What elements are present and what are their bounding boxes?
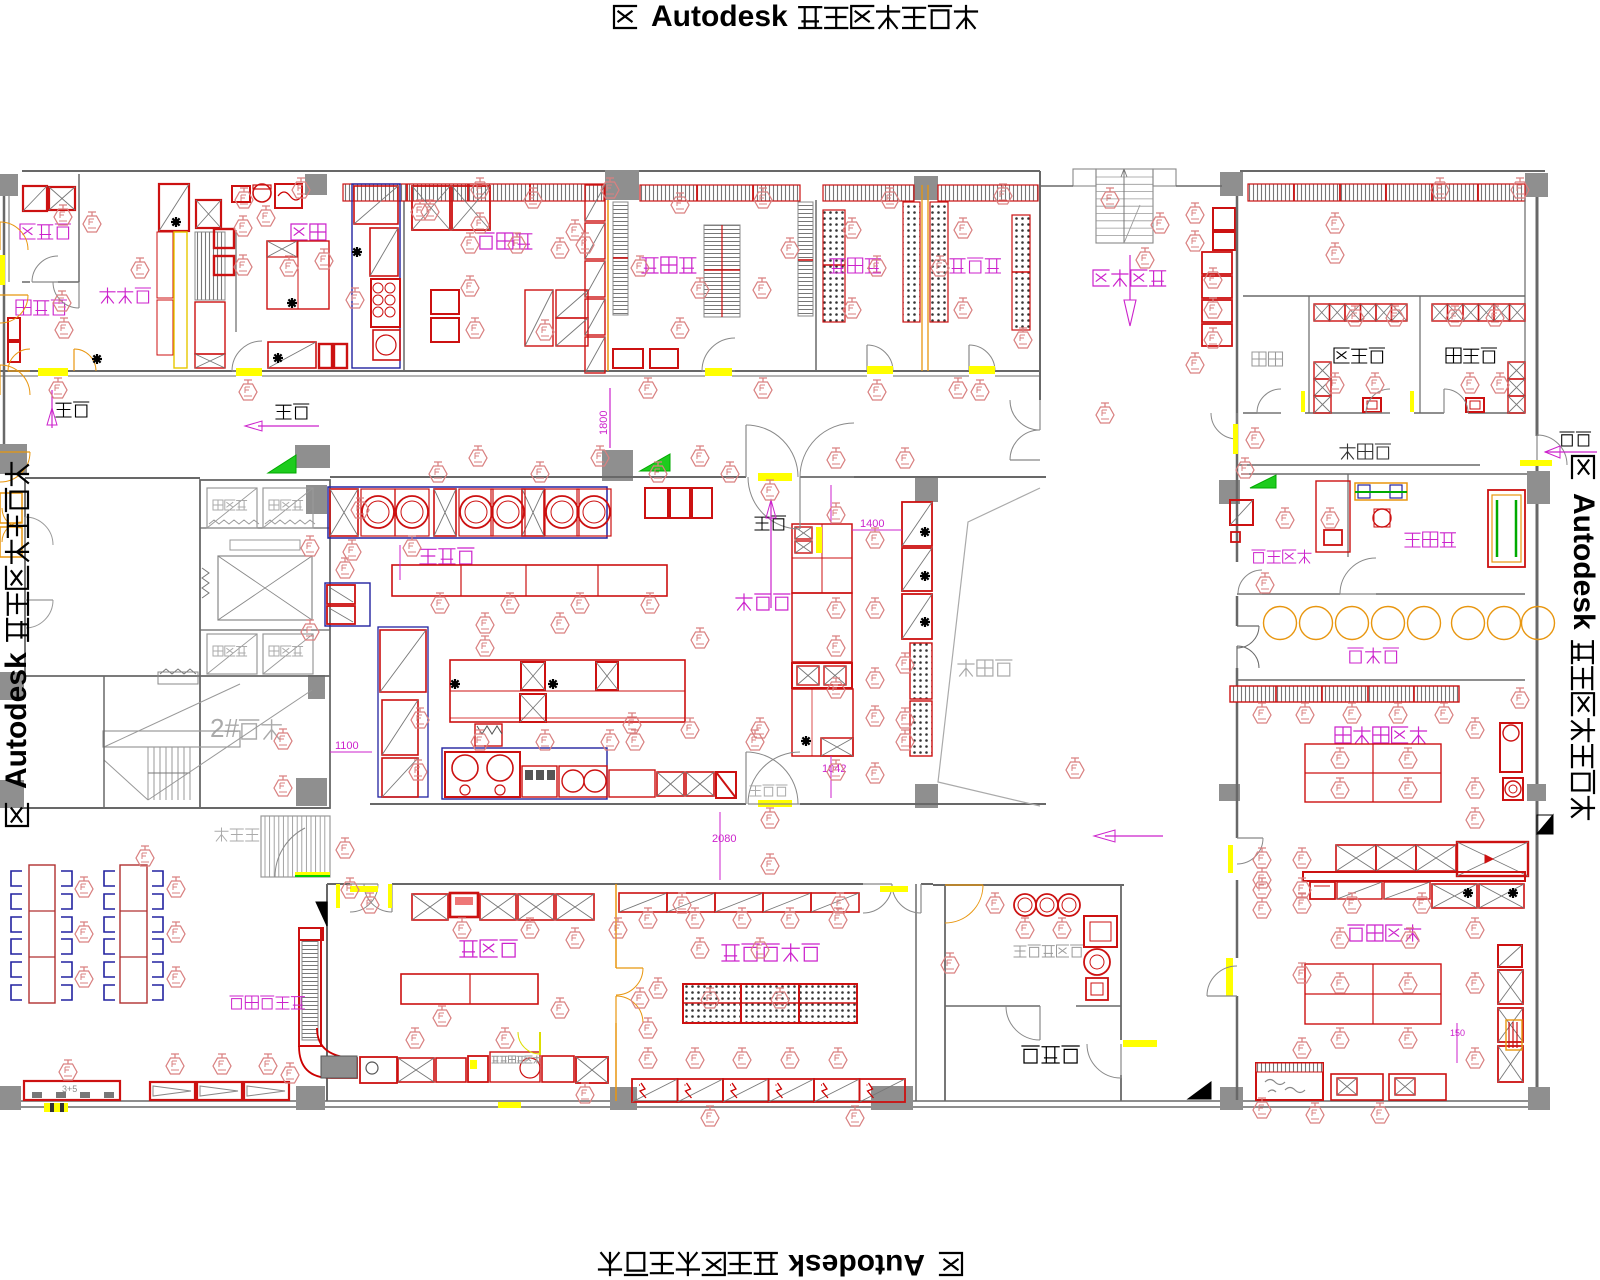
svg-text:Autodesk: Autodesk: [788, 1248, 925, 1280]
svg-text:1800: 1800: [598, 411, 610, 435]
svg-text:1100: 1100: [335, 740, 359, 752]
svg-text:Autodesk: Autodesk: [0, 652, 33, 789]
svg-text:2#: 2#: [210, 713, 239, 743]
svg-text:Autodesk: Autodesk: [651, 0, 788, 33]
svg-text:3+5: 3+5: [62, 1084, 77, 1094]
svg-text:150: 150: [1450, 1028, 1465, 1038]
svg-text:2080: 2080: [712, 833, 736, 845]
svg-text:Autodesk: Autodesk: [1567, 493, 1600, 630]
